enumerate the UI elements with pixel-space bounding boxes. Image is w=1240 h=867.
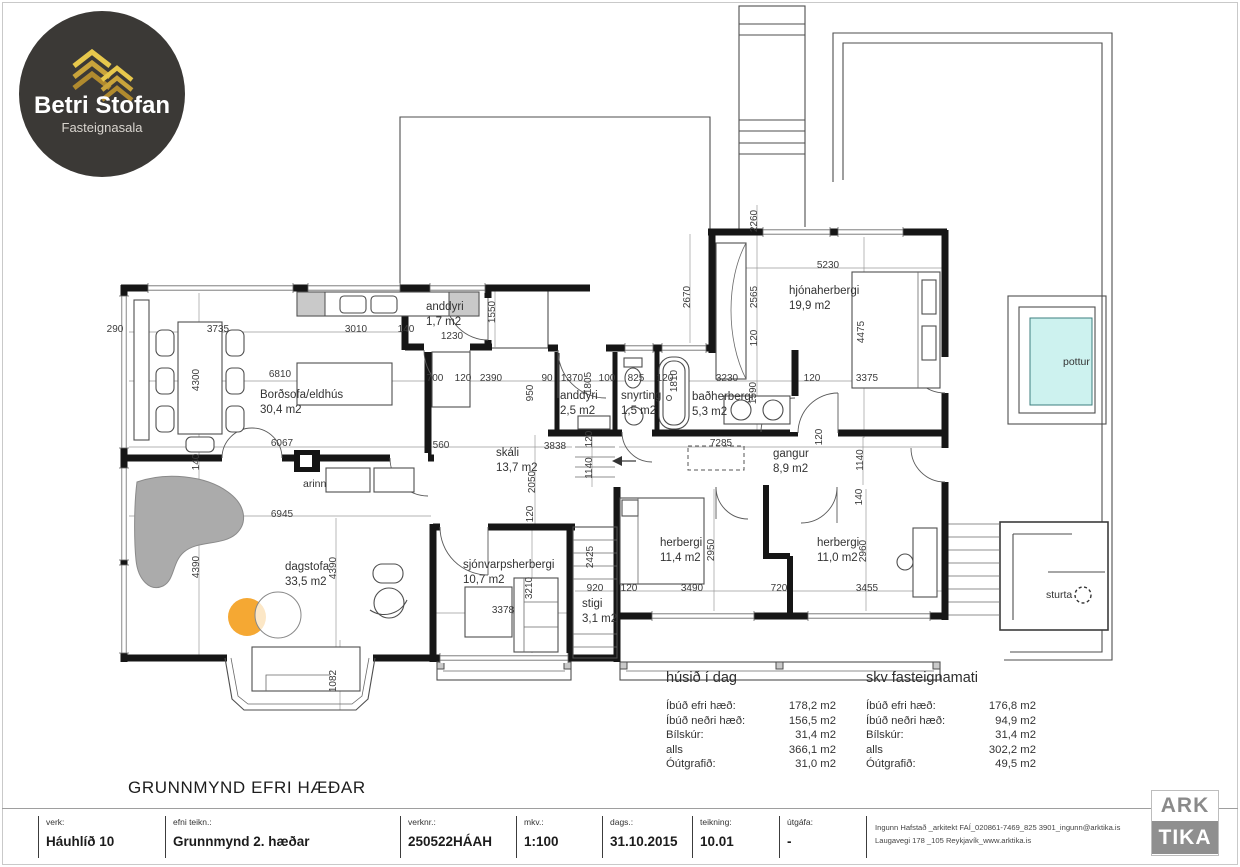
dimension-label: 2260 (749, 209, 760, 232)
arktika-logo-top: ARK (1152, 791, 1218, 821)
dimension-label: 140 (191, 453, 202, 470)
dimension-label: 1805 (583, 371, 594, 394)
area-table-current: húsið í dag Íbúð efri hæð:178,2 m2Íbúð n… (666, 670, 836, 772)
logo-subtitle: Fasteignasala (62, 120, 144, 135)
room-label: 10,7 m2 (463, 574, 505, 586)
dimension-label: 700 (427, 373, 444, 384)
dimension-label: 120 (804, 373, 821, 384)
area-table-assessment: skv fasteignamati Íbúð efri hæð:176,8 m2… (866, 670, 1036, 772)
bay-sofa (252, 647, 360, 691)
sink (371, 296, 397, 313)
room-label: Borðsofa/eldhús (260, 389, 343, 401)
titleblock-field: efni teikn.:Grunnmynd 2. hæðar (165, 816, 310, 858)
dimension-label: 1590 (748, 381, 759, 404)
dimension-label: 1370 (561, 373, 584, 384)
dimension-label: 2390 (480, 373, 503, 384)
dimension-label: 120 (814, 428, 825, 445)
dimension-label: 1230 (441, 331, 464, 342)
dimension-label: 2670 (682, 285, 693, 308)
dimension-label: 120 (584, 430, 595, 447)
dimension-label: 3378 (492, 605, 515, 616)
area-row: Óútgrafið:31,0 m2 (666, 757, 836, 772)
area-row: Íbúð neðri hæð:94,9 m2 (866, 714, 1036, 729)
dimension-label: 920 (587, 583, 604, 594)
architect-line1: Ingunn Hafstað _arkitekt FAÍ_020861-7469… (875, 822, 1145, 833)
outdoor-shower (1000, 522, 1108, 630)
dimension-label: 3230 (716, 373, 739, 384)
arktika-logo-bottom: TIKA (1152, 821, 1218, 854)
dimension-label: 3490 (681, 583, 704, 594)
room-label: hjónaherbergi (789, 285, 859, 297)
dimension-label: 1550 (487, 300, 498, 323)
dimension-label: 6067 (271, 438, 294, 449)
dimension-label: 825 (628, 373, 645, 384)
hall-cabinet (578, 416, 610, 429)
dimension-label: 140 (854, 488, 865, 505)
dimension-label: 2565 (749, 285, 760, 308)
dimension-label: 2425 (585, 545, 596, 568)
dimension-label: 3210 (524, 576, 535, 599)
dimension-label: 120 (525, 505, 536, 522)
room-label: sjónvarpsherbergi (463, 559, 554, 571)
room-label: arinn (303, 478, 327, 490)
dimension-label: 3375 (856, 373, 879, 384)
skylight (688, 446, 744, 470)
drawing-title: GRUNNMYND EFRI HÆÐAR (128, 778, 366, 798)
dimension-label: 720 (771, 583, 788, 594)
area-row: Bílskúr:31,4 m2 (866, 728, 1036, 743)
room-label: 19,9 m2 (789, 300, 831, 312)
room-label: dagstofa (285, 561, 330, 573)
stair-direction-arrow (612, 456, 636, 466)
wardrobe (716, 243, 746, 379)
architect-line2: Laugavegi 178 _105 Reykjavík_www.arktika… (875, 835, 1145, 846)
room-label: sturta (1046, 589, 1072, 601)
entry-step (490, 286, 548, 348)
dimension-label: 4300 (191, 368, 202, 391)
dimension-label: 1140 (855, 449, 866, 471)
dimension-label: 4390 (191, 555, 202, 578)
room-label: herbergi (660, 537, 702, 549)
desk-2 (897, 528, 937, 597)
titleblock-field: útgáfa:- (779, 816, 813, 858)
titleblock-field: dags.:31.10.2015 (602, 816, 678, 858)
room-label: stigi (582, 598, 602, 610)
room-label: baðherbergi (692, 391, 753, 403)
dimension-label: 5230 (817, 260, 840, 271)
dimension-label: 3010 (345, 324, 368, 335)
dimension-label: 100 (599, 373, 616, 384)
area-row: Íbúð efri hæð:178,2 m2 (666, 699, 836, 714)
deck-steps (947, 524, 1000, 615)
dimension-label: 7285 (710, 438, 733, 449)
dimension-label: 90 (541, 373, 553, 384)
dimension-label: 4475 (856, 320, 867, 343)
titleblock-field: teikning:10.01 (692, 816, 734, 858)
titleblock-divider (2, 808, 1238, 809)
dimension-label: 6945 (271, 509, 294, 520)
room-label: 1,7 m2 (426, 316, 461, 328)
hot-tub (1008, 296, 1106, 424)
area-table-title: skv fasteignamati (866, 670, 1036, 686)
chimney (739, 6, 805, 230)
dimension-label: 2950 (706, 538, 717, 561)
dimension-label: 4390 (328, 556, 339, 579)
titleblock-field: verknr.:250522HÁAH (400, 816, 492, 858)
roof-outline (400, 117, 710, 285)
dimension-label: 1140 (584, 457, 595, 479)
room-label: 1,5 m2 (621, 405, 656, 417)
betri-stofan-logo: Betri Stofan Fasteignasala (16, 6, 188, 182)
grand-piano (135, 476, 244, 587)
room-label: snyrting (621, 390, 661, 402)
area-row: Íbúð efri hæð:176,8 m2 (866, 699, 1036, 714)
dimension-label: 1082 (328, 669, 339, 692)
dimension-label: 1810 (669, 369, 680, 392)
titleblock-field: mkv.:1:100 (516, 816, 559, 858)
room-label: 33,5 m2 (285, 576, 327, 588)
room-label: pottur (1063, 356, 1090, 368)
room-label: 3,1 m2 (582, 613, 617, 625)
area-row: Íbúð neðri hæð:156,5 m2 (666, 714, 836, 729)
arktika-logo: ARK TIKA (1151, 790, 1219, 856)
room-label: anddyri (426, 301, 464, 313)
area-row: Bílskúr:31,4 m2 (666, 728, 836, 743)
dimension-label: 3838 (544, 441, 567, 452)
room-label: skáli (496, 447, 519, 459)
dimension-label: 3455 (856, 583, 879, 594)
area-table-title: húsið í dag (666, 670, 836, 686)
area-row: alls366,1 m2 (666, 743, 836, 758)
dimension-label: 2960 (858, 539, 869, 562)
room-label: 8,9 m2 (773, 463, 808, 475)
dimension-label: 6810 (269, 369, 292, 380)
dimension-label: 3735 (207, 324, 230, 335)
dimension-label: 120 (455, 373, 472, 384)
room-label: 5,3 m2 (692, 406, 727, 418)
dimension-label: 140 (398, 324, 415, 335)
logo-title: Betri Stofan (34, 92, 170, 119)
armchair (370, 564, 407, 618)
dimension-label: 120 (621, 583, 638, 594)
dimension-label: 120 (749, 329, 760, 346)
titleblock-field: verk:Háuhlíð 10 (38, 816, 114, 858)
room-label: 2,5 m2 (560, 405, 595, 417)
area-row: alls302,2 m2 (866, 743, 1036, 758)
architect-info: Ingunn Hafstað _arkitekt FAÍ_020861-7469… (866, 816, 1145, 858)
room-label: 11,0 m2 (817, 552, 858, 564)
room-label: 11,4 m2 (660, 552, 701, 564)
dimension-label: 950 (525, 384, 536, 401)
room-label: gangur (773, 448, 809, 460)
dimension-label: 560 (433, 440, 450, 451)
dimension-label: 2050 (527, 470, 538, 493)
dimension-label: 290 (107, 324, 124, 335)
room-label: 30,4 m2 (260, 404, 302, 416)
area-row: Óútgrafið:49,5 m2 (866, 757, 1036, 772)
sink (340, 296, 366, 313)
room-label: herbergi (817, 537, 859, 549)
